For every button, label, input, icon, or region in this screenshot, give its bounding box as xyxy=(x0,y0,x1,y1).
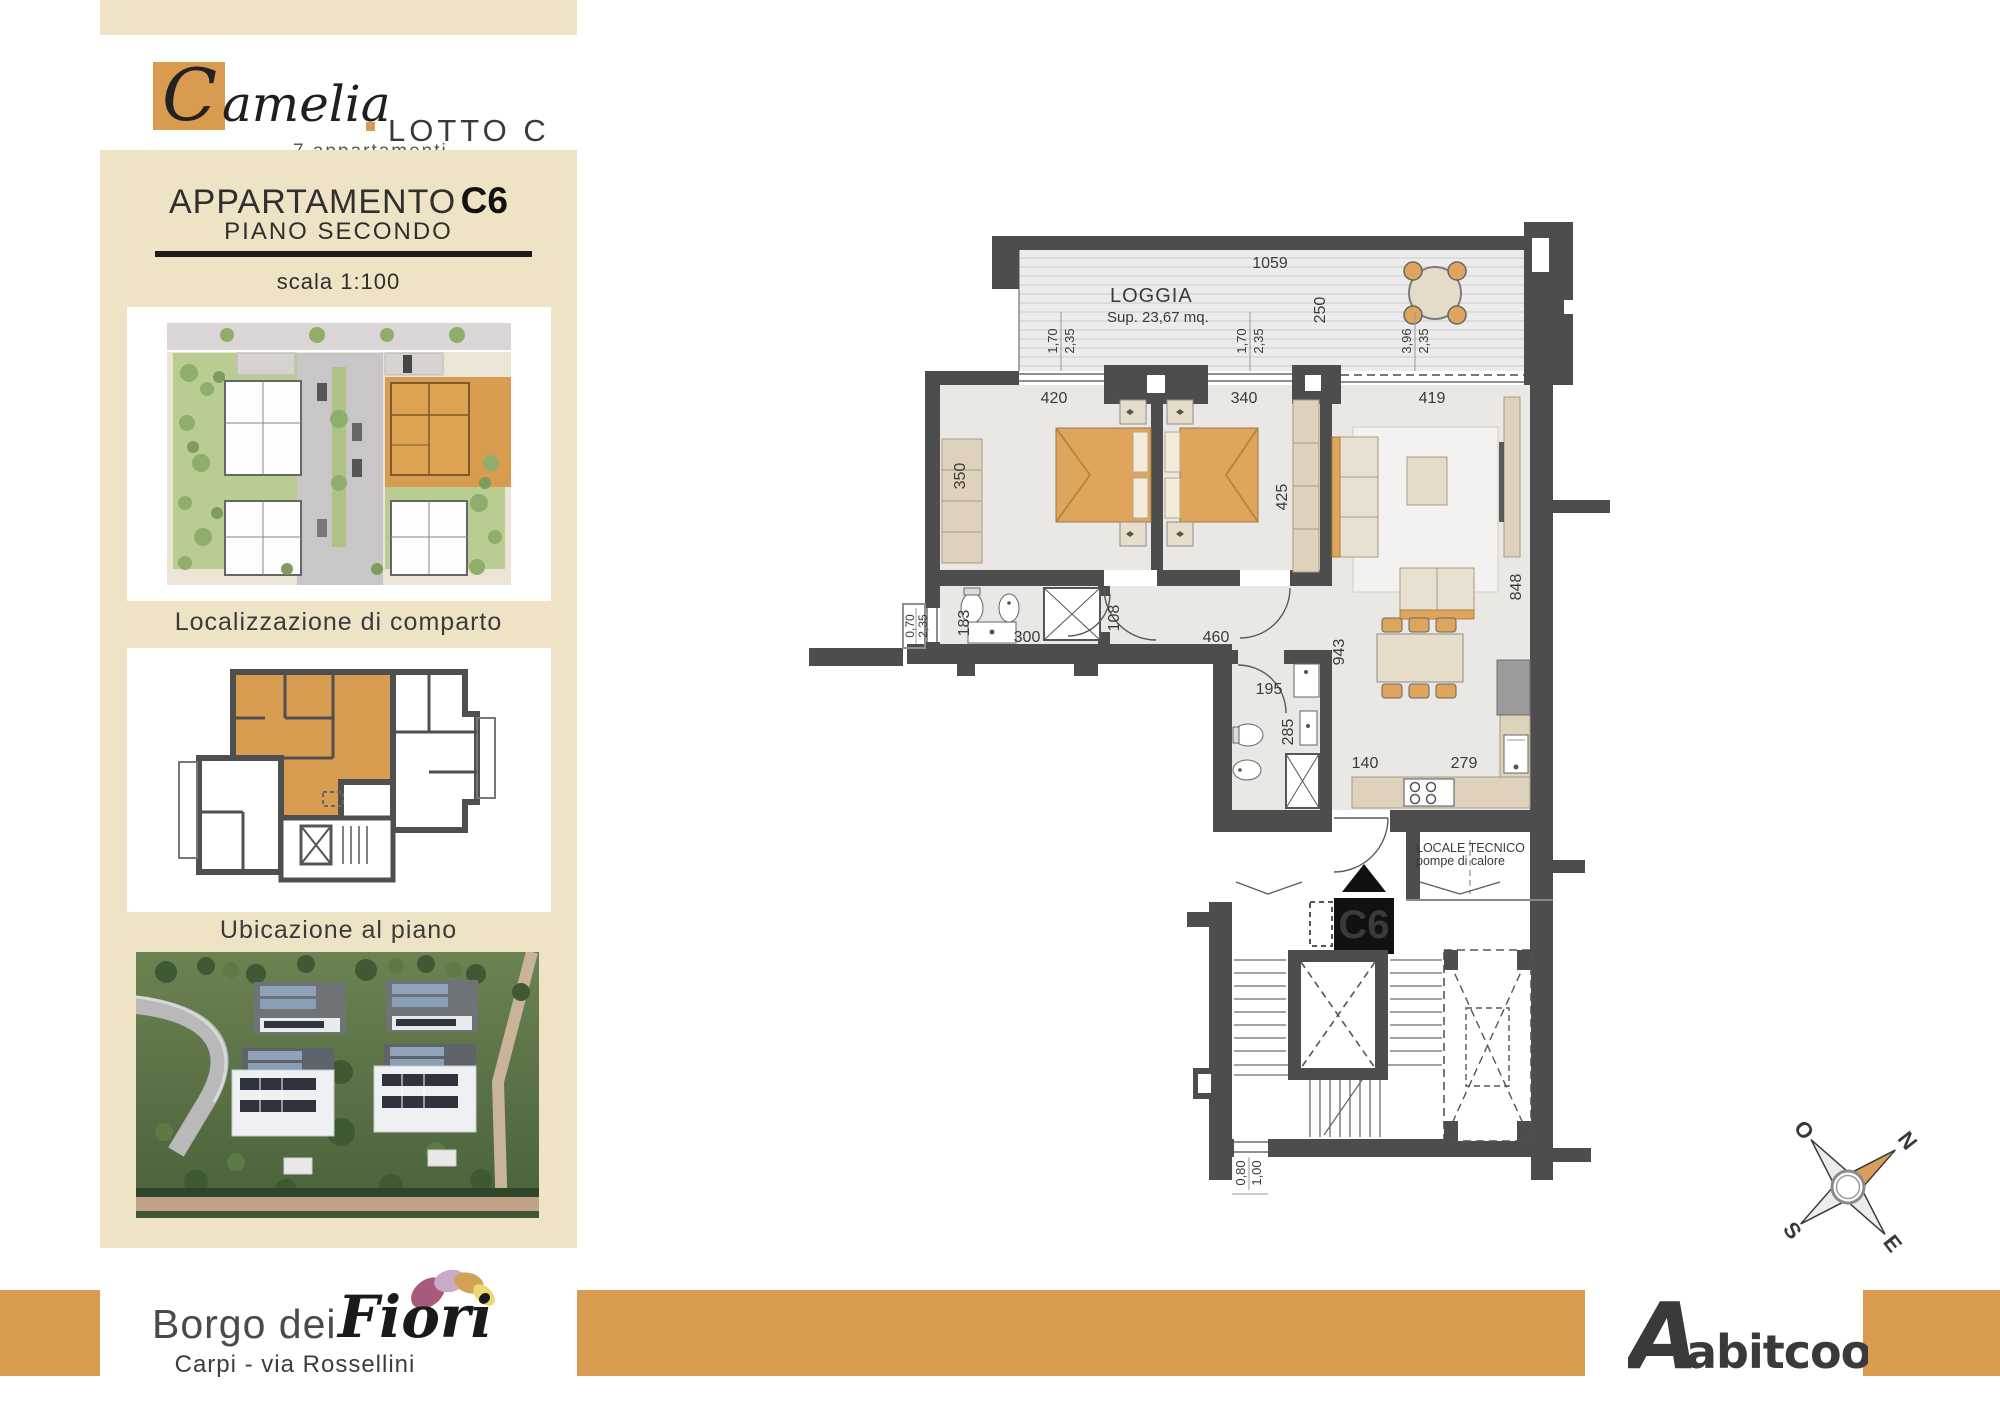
loggia-table xyxy=(1404,262,1466,324)
dim-w1a: 1,70 xyxy=(1045,328,1060,353)
dim-bath1-door: 108 xyxy=(1106,605,1123,632)
camelia-logo-initial: C xyxy=(162,53,217,137)
compass-n: N xyxy=(1893,1127,1922,1155)
footer-left-block xyxy=(0,1290,100,1376)
entrance-arrow-icon xyxy=(1342,864,1386,892)
dim-bathwin-b: 2,35 xyxy=(916,614,930,638)
sidebar-panel: APPARTAMENTO C6 PIANO SECONDO scala 1:10… xyxy=(100,150,577,1248)
dim-bed1-d: 350 xyxy=(952,463,969,490)
dim-loggia-depth: 250 xyxy=(1312,297,1329,324)
dim-w2b: 2,35 xyxy=(1251,328,1266,353)
compass-o: O xyxy=(1789,1116,1819,1145)
abitcoop-name: abitcoop xyxy=(1686,1325,1868,1376)
dim-hall: 460 xyxy=(1203,629,1230,646)
dim-living-d: 848 xyxy=(1508,574,1525,601)
project-location: Carpi - via Rossellini xyxy=(130,1351,460,1379)
project-name: Borgo dei xyxy=(152,1301,337,1348)
project-name-script: Fiori xyxy=(338,1283,493,1351)
compass-e: E xyxy=(1878,1230,1907,1257)
dim-bath1-l: 300 xyxy=(1014,629,1041,646)
site-plan-image xyxy=(167,323,511,585)
dim-loggia-width: 1059 xyxy=(1252,255,1288,272)
dim-kitchen-a: 140 xyxy=(1352,755,1379,772)
render-image xyxy=(136,952,539,1218)
dim-bed2-d: 425 xyxy=(1274,484,1291,511)
apartment-title-unit: C6 xyxy=(461,180,508,221)
loggia-label: LOGGIA xyxy=(1110,285,1193,307)
floor-plan: LOCALE TECNICO pompe di calore C6 xyxy=(620,160,1620,1208)
dim-w3a: 3,96 xyxy=(1399,328,1414,353)
dim-living-w: 419 xyxy=(1419,390,1446,407)
apartment-title-label: APPARTAMENTO xyxy=(169,183,456,221)
sidebar-top-bar xyxy=(100,0,577,35)
dim-bed2-w: 340 xyxy=(1231,390,1258,407)
scale-label: scala 1:100 xyxy=(100,269,577,295)
floor-location-panel xyxy=(127,648,551,912)
dim-bed1-w: 420 xyxy=(1041,390,1068,407)
compass-rose: N E S O xyxy=(1763,1102,1933,1272)
borgo-dei-fiori-logo: Borgo dei Fiori Carpi - via Rossellini xyxy=(130,1255,550,1385)
stairwell xyxy=(1234,950,1531,1141)
unit-marker-label: C6 xyxy=(1338,903,1389,947)
dim-kitchen-b: 279 xyxy=(1451,755,1478,772)
dim-bathwin-a: 0,70 xyxy=(903,614,917,638)
dim-bath2-d: 285 xyxy=(1280,719,1297,746)
abitcoop-logo: A abitcoop xyxy=(1628,1286,1868,1376)
footer-center-bar xyxy=(577,1290,1585,1376)
dim-bath2-door: 195 xyxy=(1256,681,1283,698)
dim-stairwin-a: 0,80 xyxy=(1233,1160,1248,1185)
title-rule xyxy=(155,251,532,257)
loggia-area: Sup. 23,67 mq. xyxy=(1107,309,1209,326)
dim-bath1-w: 183 xyxy=(956,610,973,637)
dim-stairwin-b: 1,00 xyxy=(1249,1160,1264,1185)
brochure-page: C amelia LOTTO C 7 appartamen­ti APPARTA… xyxy=(0,0,2000,1414)
site-plan-panel xyxy=(127,307,551,601)
logo-dot-icon xyxy=(366,122,375,131)
dim-w1b: 2,35 xyxy=(1062,328,1077,353)
caption-site: Localizzazione di comparto xyxy=(100,608,577,637)
floor-location-image xyxy=(173,662,505,898)
tech-room-line1: LOCALE TECNICO xyxy=(1416,841,1525,855)
footer-right-block xyxy=(1863,1290,2000,1376)
dim-w3b: 2,35 xyxy=(1416,328,1431,353)
caption-floor: Ubicazione al piano xyxy=(100,916,577,945)
dim-w2a: 1,70 xyxy=(1234,328,1249,353)
tech-room-line2: pompe di calore xyxy=(1416,854,1505,868)
apartment-title: APPARTAMENTO C6 xyxy=(100,180,577,222)
camelia-logo: C amelia LOTTO C 7 appartamen­ti xyxy=(100,35,620,150)
dim-living-l: 943 xyxy=(1331,639,1348,666)
floor-label: PIANO SECONDO xyxy=(100,218,577,246)
